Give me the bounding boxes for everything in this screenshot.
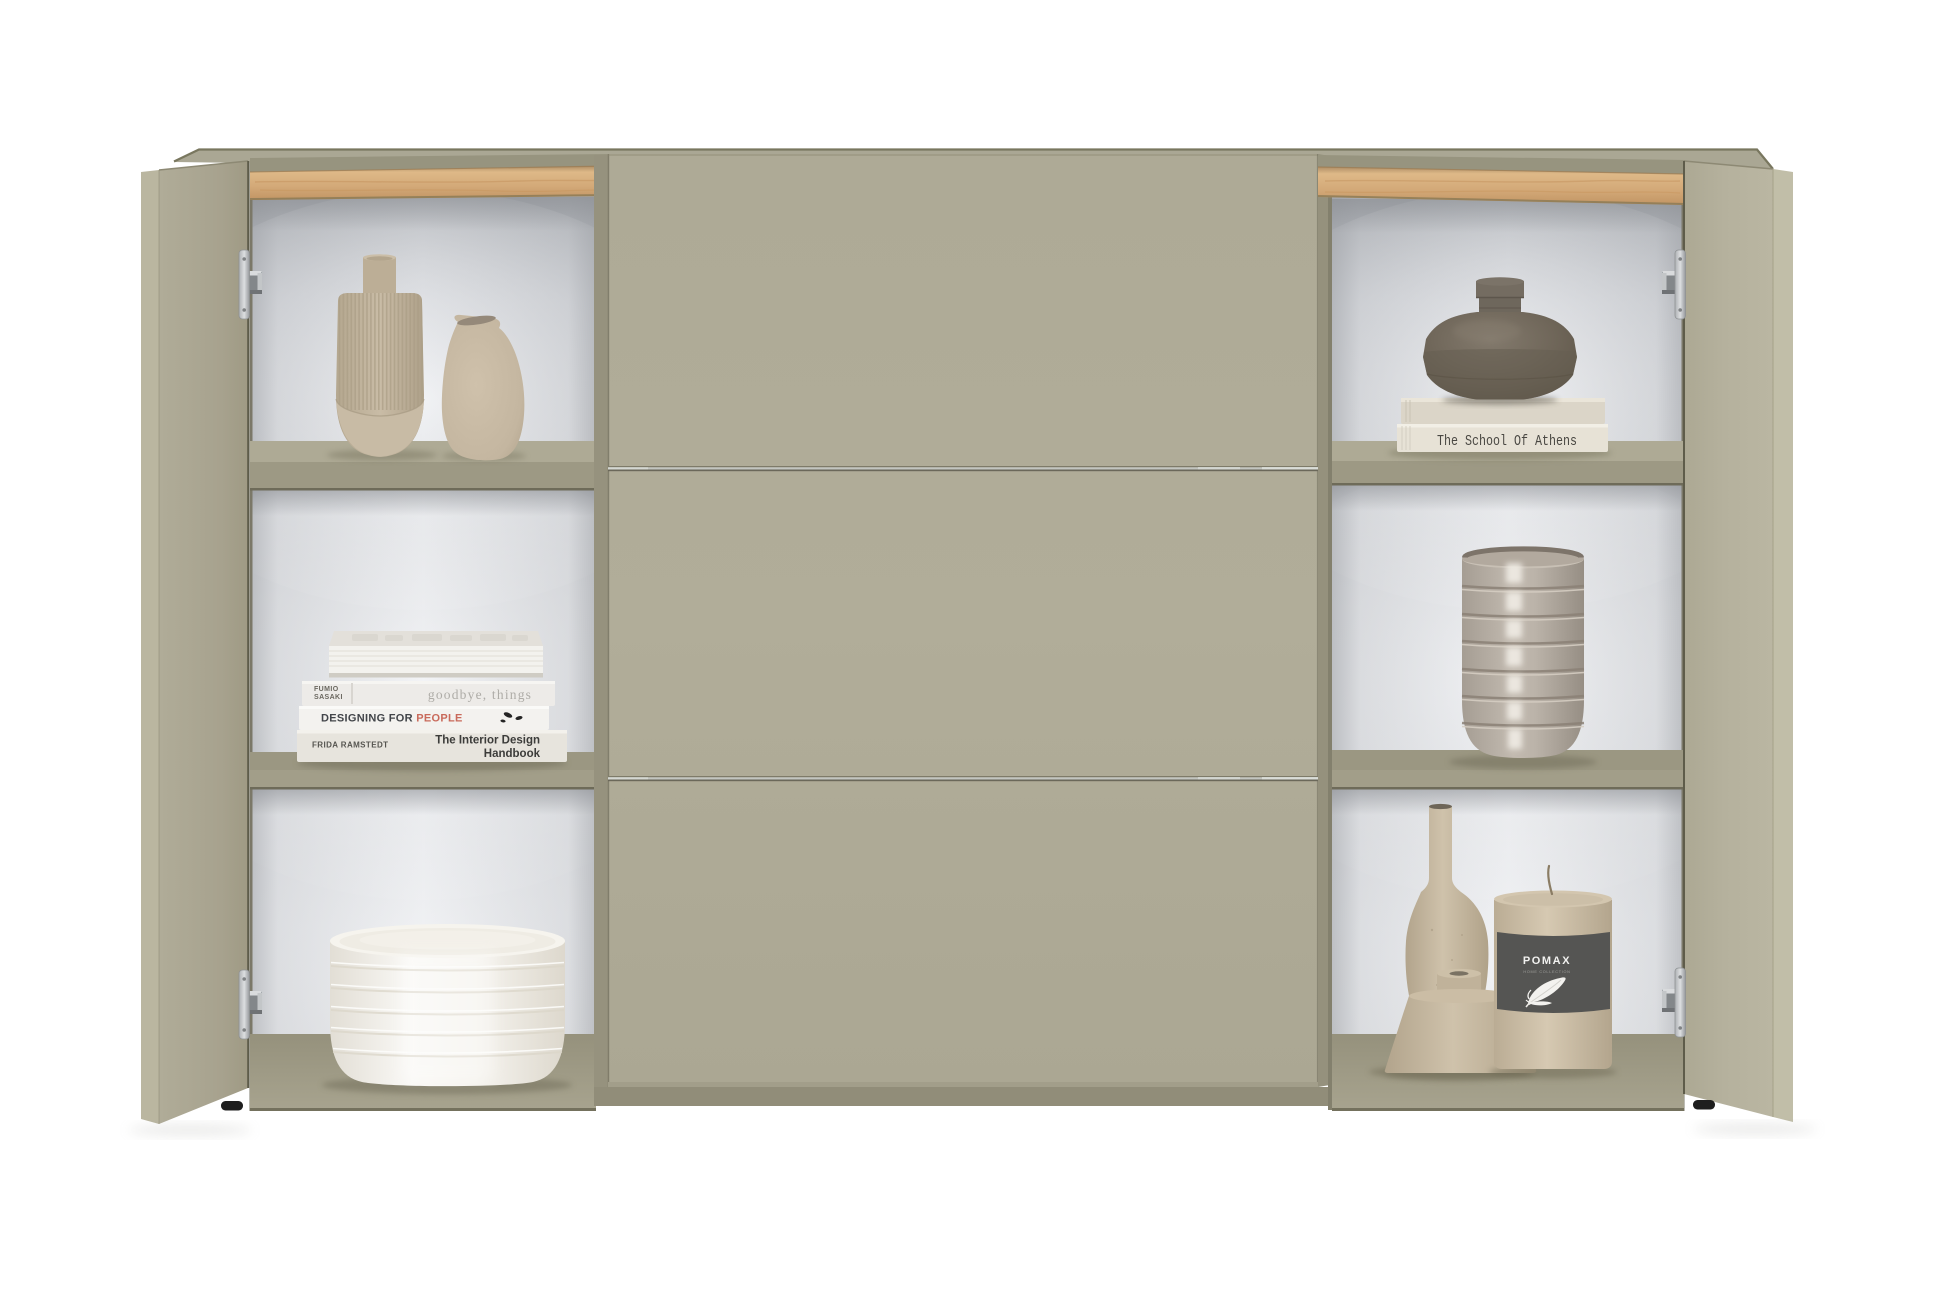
svg-text:SASAKI: SASAKI <box>314 694 343 701</box>
svg-text:HOME COLLECTION: HOME COLLECTION <box>1523 970 1570 974</box>
svg-text:The School Of Athens: The School Of Athens <box>1437 434 1577 450</box>
svg-text:Handbook: Handbook <box>484 748 541 760</box>
svg-text:DESIGNING FOR PEOPLE: DESIGNING FOR PEOPLE <box>321 713 463 725</box>
svg-text:POMAX: POMAX <box>1523 955 1571 967</box>
svg-text:goodbye, things: goodbye, things <box>428 687 532 702</box>
svg-text:FRIDA RAMSTEDT: FRIDA RAMSTEDT <box>312 741 388 750</box>
svg-text:FUMIO: FUMIO <box>314 686 339 693</box>
svg-text:The Interior Design: The Interior Design <box>435 735 540 747</box>
